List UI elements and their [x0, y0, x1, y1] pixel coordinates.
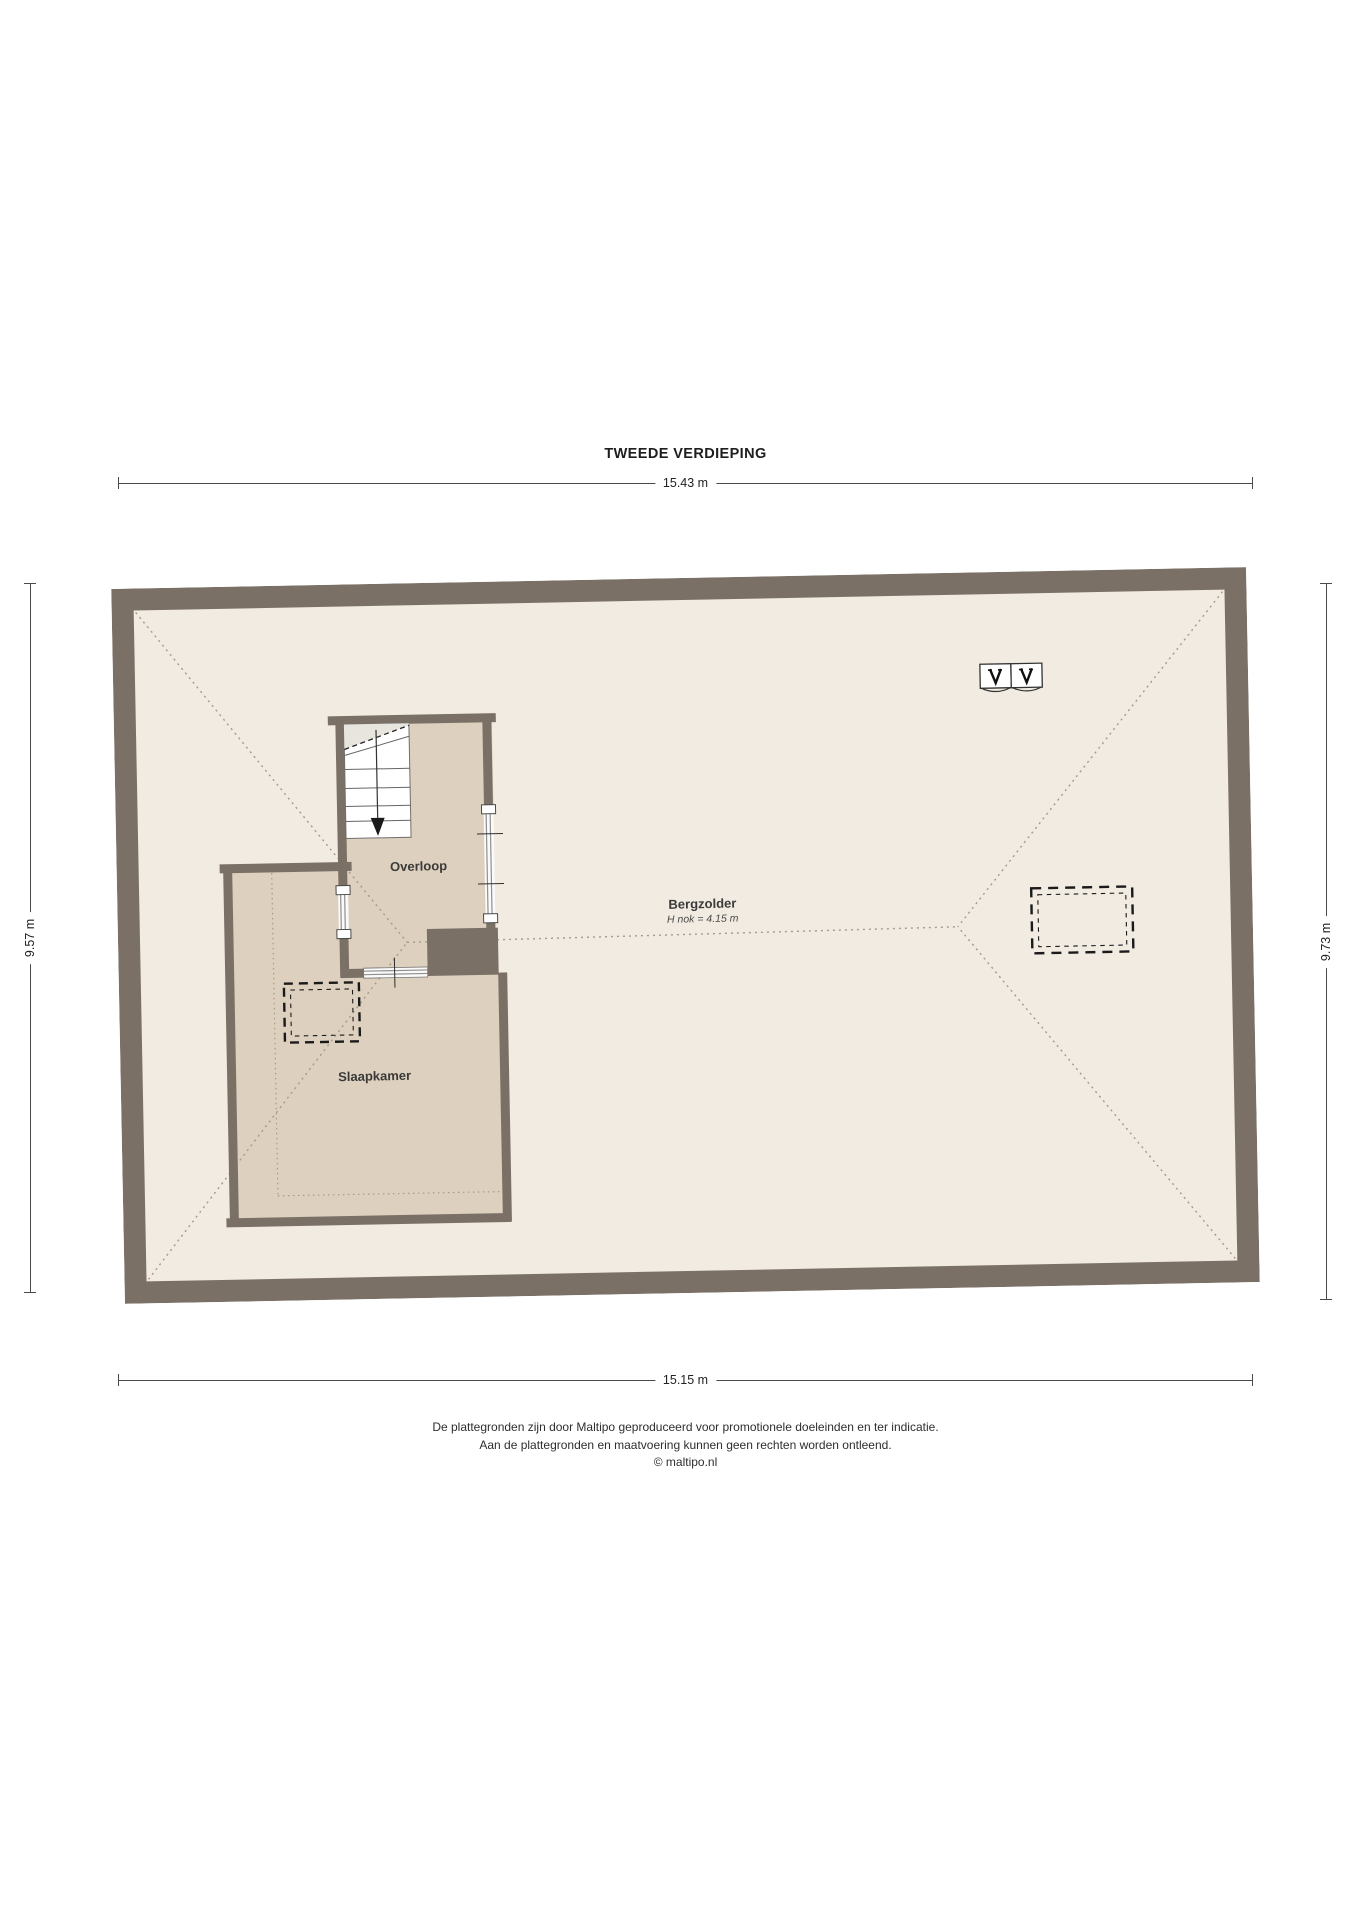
dimension-top: 15.43 m: [118, 476, 1253, 490]
bergzolder-label: Bergzolder: [668, 896, 736, 912]
room-label-overloop: Overloop: [390, 858, 447, 874]
slaapkamer-label: Slaapkamer: [338, 1068, 411, 1084]
dimension-tick: [1252, 477, 1253, 489]
dimension-left: 9.57 m: [23, 583, 37, 1293]
bergzolder-height-note: H nok = 4.15 m: [667, 912, 739, 925]
room-label-bergzolder: Bergzolder H nok = 4.15 m: [667, 895, 739, 925]
footer-disclaimer: De plattegronden zijn door Maltipo gepro…: [118, 1419, 1253, 1472]
dimension-tick: [1252, 1374, 1253, 1386]
dimension-tick: [118, 1374, 119, 1386]
floor-plan: Overloop Slaapkamer Bergzolder H nok = 4…: [111, 567, 1260, 1304]
staircase: [344, 723, 411, 838]
floor-plan-svg: [111, 567, 1260, 1304]
dimension-tick: [24, 583, 36, 584]
footer-line-2: Aan de plattegronden en maatvoering kunn…: [118, 1437, 1253, 1455]
dimension-right: 9.73 m: [1319, 583, 1333, 1300]
footer-copyright: © maltipo.nl: [118, 1454, 1253, 1472]
dimension-right-label: 9.73 m: [1319, 915, 1333, 967]
dimension-bottom-label: 15.15 m: [655, 1373, 716, 1387]
footer-line-1: De plattegronden zijn door Maltipo gepro…: [118, 1419, 1253, 1437]
dimension-left-label: 9.57 m: [23, 912, 37, 964]
page-title: TWEEDE VERDIEPING: [118, 446, 1253, 462]
roof-window-icons: [980, 663, 1043, 692]
wall-mass-block: [427, 928, 499, 976]
dimension-tick: [1320, 1299, 1332, 1300]
roof-window-icon: [980, 664, 1012, 692]
dimension-tick: [118, 477, 119, 489]
dimension-tick: [1320, 583, 1332, 584]
dimension-tick: [24, 1292, 36, 1293]
room-label-slaapkamer: Slaapkamer: [338, 1068, 411, 1084]
floorplan-sheet: TWEEDE VERDIEPING 15.43 m 15.15 m 9.57 m…: [0, 0, 1358, 1920]
dimension-top-label: 15.43 m: [655, 476, 716, 490]
roof-window-icon: [1011, 663, 1043, 691]
dimension-bottom: 15.15 m: [118, 1373, 1253, 1387]
overloop-label: Overloop: [390, 858, 447, 874]
